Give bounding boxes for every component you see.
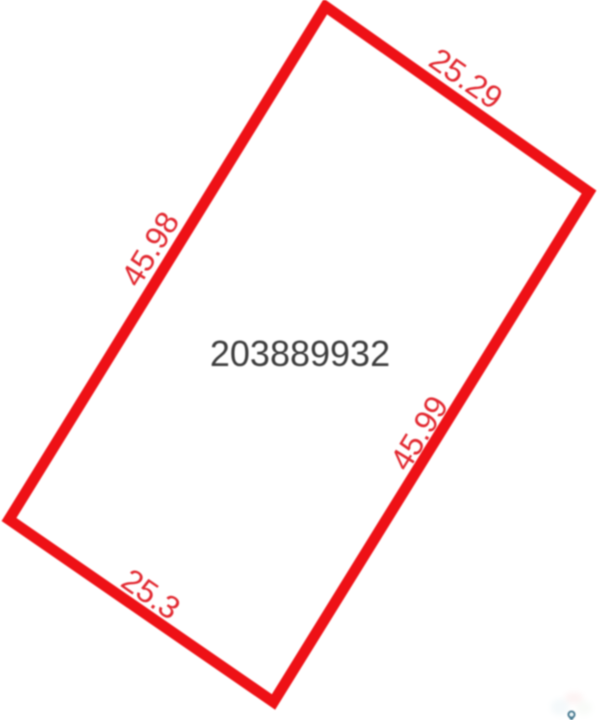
svg-text:203889932: 203889932 [210, 333, 390, 374]
